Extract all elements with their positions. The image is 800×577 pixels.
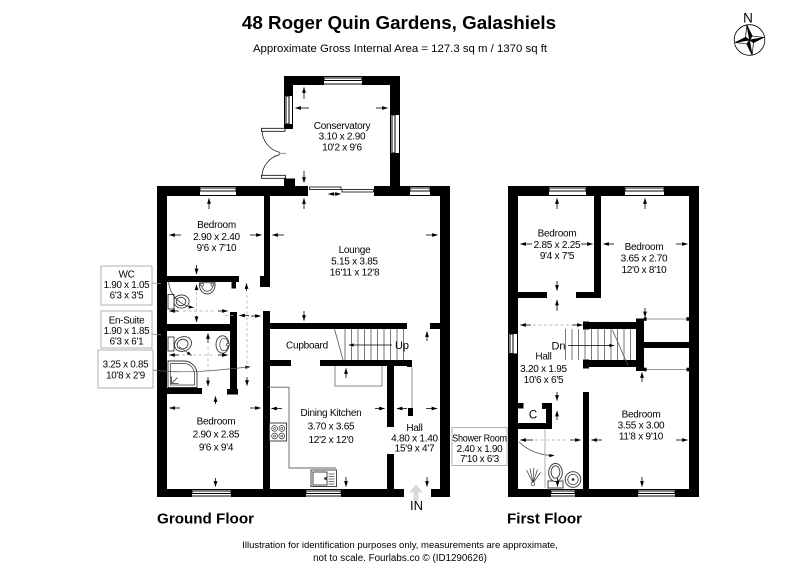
svg-text:N: N — [743, 11, 753, 26]
svg-text:9'6 x 9'4: 9'6 x 9'4 — [199, 443, 234, 454]
svg-text:Illustration for identificatio: Illustration for identification purposes… — [242, 540, 558, 551]
svg-text:3.20 x 1.95: 3.20 x 1.95 — [520, 364, 567, 375]
svg-text:3.65 x 2.70: 3.65 x 2.70 — [621, 254, 668, 265]
svg-text:12'0 x 8'10: 12'0 x 8'10 — [622, 265, 668, 276]
svg-text:3.55 x 3.00: 3.55 x 3.00 — [618, 421, 665, 432]
svg-text:Bedroom: Bedroom — [197, 220, 236, 231]
svg-text:2.90 x 2.40: 2.90 x 2.40 — [193, 232, 240, 243]
svg-text:11'8 x 9'10: 11'8 x 9'10 — [619, 432, 664, 443]
svg-text:Cupboard: Cupboard — [286, 341, 328, 352]
svg-text:Bedroom: Bedroom — [622, 410, 661, 421]
svg-text:7'10 x 6'3: 7'10 x 6'3 — [460, 454, 500, 465]
svg-text:1.90 x 1.85: 1.90 x 1.85 — [104, 326, 151, 337]
svg-text:not to scale. Fourlabs.co © (I: not to scale. Fourlabs.co © (ID1290626) — [313, 553, 487, 564]
svg-text:Up: Up — [395, 340, 409, 352]
svg-text:2.90 x 2.85: 2.90 x 2.85 — [193, 430, 240, 441]
svg-text:First Floor: First Floor — [507, 511, 582, 528]
svg-text:6'3 x 3'5: 6'3 x 3'5 — [110, 291, 144, 302]
svg-text:En-Suite: En-Suite — [109, 316, 145, 327]
svg-text:2.85 x 2.25: 2.85 x 2.25 — [534, 240, 581, 251]
svg-text:5.15 x 3.85: 5.15 x 3.85 — [331, 257, 378, 268]
svg-text:WC: WC — [119, 270, 135, 281]
svg-text:6'3 x 6'1: 6'3 x 6'1 — [110, 337, 144, 348]
svg-text:Lounge: Lounge — [339, 245, 372, 256]
svg-text:1.90 x 1.05: 1.90 x 1.05 — [104, 280, 151, 291]
svg-text:48 Roger Quin Gardens, Galashi: 48 Roger Quin Gardens, Galashiels — [242, 12, 556, 33]
svg-text:10'8 x 2'9: 10'8 x 2'9 — [106, 371, 145, 382]
svg-text:Conservatory: Conservatory — [314, 121, 371, 132]
svg-text:10'6 x 6'5: 10'6 x 6'5 — [524, 375, 564, 386]
svg-text:12'2 x 12'0: 12'2 x 12'0 — [309, 435, 355, 446]
svg-text:Dn: Dn — [551, 341, 565, 353]
svg-text:15'9 x 4'7: 15'9 x 4'7 — [395, 444, 435, 455]
svg-text:Dining Kitchen: Dining Kitchen — [301, 408, 362, 419]
svg-text:Hall: Hall — [535, 352, 551, 363]
svg-text:Approximate Gross Internal Are: Approximate Gross Internal Area = 127.3 … — [253, 43, 548, 55]
svg-text:3.70 x 3.65: 3.70 x 3.65 — [308, 422, 355, 433]
svg-text:Shower Room: Shower Room — [452, 434, 507, 445]
svg-text:C: C — [529, 410, 537, 422]
svg-text:Bedroom: Bedroom — [625, 242, 664, 253]
svg-text:3.25 x 0.85: 3.25 x 0.85 — [103, 360, 150, 371]
svg-text:9'6 x 7'10: 9'6 x 7'10 — [197, 243, 237, 254]
svg-text:Hall: Hall — [406, 423, 422, 434]
svg-text:16'11 x 12'8: 16'11 x 12'8 — [330, 268, 380, 279]
svg-text:Bedroom: Bedroom — [538, 229, 577, 240]
svg-text:3.10 x 2.90: 3.10 x 2.90 — [319, 132, 366, 143]
svg-text:9'4 x 7'5: 9'4 x 7'5 — [540, 251, 575, 262]
svg-text:IN: IN — [410, 498, 423, 513]
svg-text:Bedroom: Bedroom — [197, 417, 236, 428]
svg-text:Ground Floor: Ground Floor — [157, 511, 254, 528]
svg-text:10'2 x 9'6: 10'2 x 9'6 — [322, 143, 362, 154]
